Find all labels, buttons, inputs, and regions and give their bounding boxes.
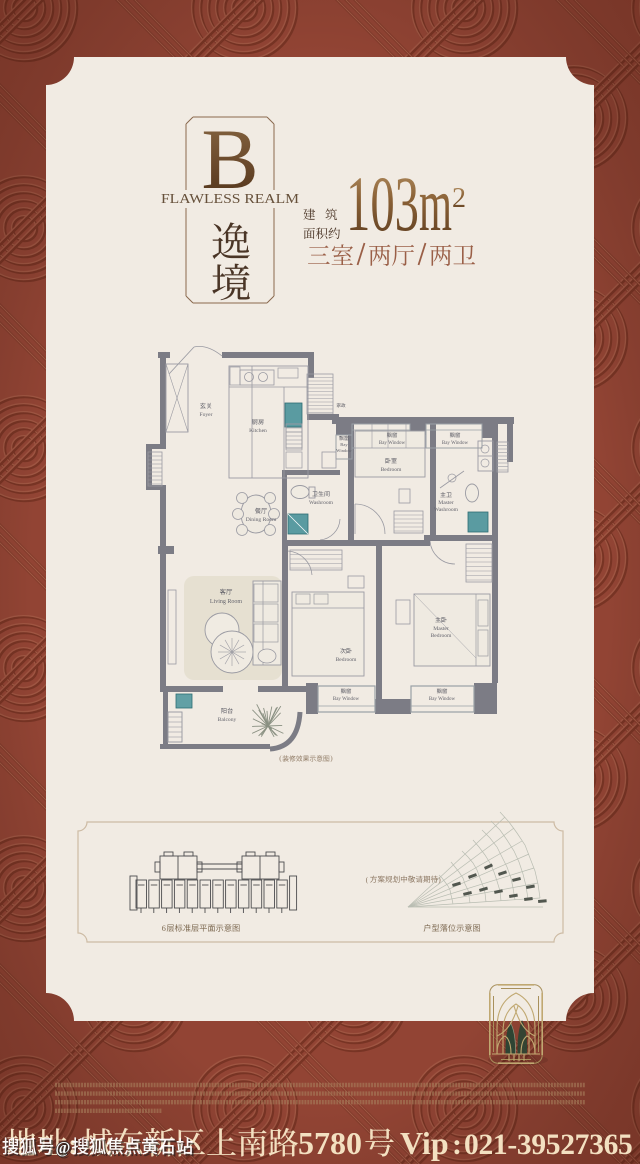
svg-text:Bay Window: Bay Window [333,697,360,702]
svg-text:021-39527365: 021-39527365 [464,1129,632,1161]
svg-text:Bay Window: Bay Window [429,697,456,702]
svg-text:Balcony: Balcony [218,717,237,723]
svg-text:Bedroom: Bedroom [431,633,452,639]
svg-text:Master: Master [438,500,454,506]
svg-text:Bedroom: Bedroom [336,657,357,663]
svg-text:@: @ [55,1138,70,1158]
svg-text:5780: 5780 [298,1125,362,1161]
svg-text:Living Room: Living Room [210,599,243,605]
svg-text:m: m [419,163,452,247]
svg-text:Window: Window [336,448,352,453]
svg-text::: : [452,1128,462,1161]
svg-text:Vip: Vip [400,1125,449,1161]
svg-text:103: 103 [346,160,419,247]
svg-text:2: 2 [452,183,466,214]
svg-text:B: B [201,111,258,207]
svg-text:Master: Master [433,626,449,632]
svg-text:Bedroom: Bedroom [381,467,402,473]
svg-text:Washroom: Washroom [309,500,334,506]
svg-text:6: 6 [162,924,166,933]
svg-text:Dining Room: Dining Room [246,517,277,523]
svg-text:Kitchen: Kitchen [249,428,267,434]
svg-text:Foyer: Foyer [199,412,212,418]
svg-text:Bay Window: Bay Window [379,441,406,446]
svg-text:Bay: Bay [340,442,348,447]
svg-text:Bay Window: Bay Window [442,441,469,446]
svg-text:Washroom: Washroom [434,507,459,513]
